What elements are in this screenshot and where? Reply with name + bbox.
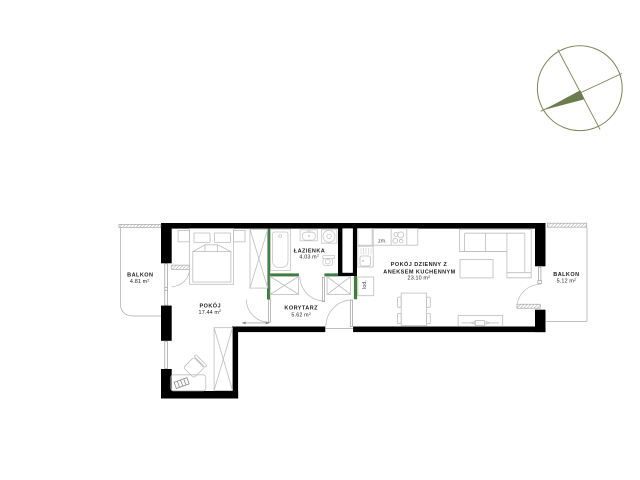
svg-text:4.03 m2: 4.03 m2 — [299, 254, 319, 261]
svg-text:4.81 m2: 4.81 m2 — [130, 279, 150, 286]
svg-text:ANEKSEM KUCHENNYM: ANEKSEM KUCHENNYM — [383, 269, 455, 275]
svg-text:17.44 m2: 17.44 m2 — [199, 309, 222, 316]
svg-text:5.12 m2: 5.12 m2 — [557, 278, 577, 285]
svg-text:5.62 m2: 5.62 m2 — [291, 312, 311, 319]
svg-text:POKÓJ: POKÓJ — [200, 302, 222, 310]
svg-text:zm.: zm. — [378, 239, 387, 245]
svg-text:POKÓJ DZIENNY Z: POKÓJ DZIENNY Z — [391, 260, 448, 268]
svg-text:BALKON: BALKON — [553, 272, 579, 278]
svg-text:23.10 m2: 23.10 m2 — [408, 275, 431, 282]
svg-text:BALKON: BALKON — [127, 272, 153, 278]
svg-text:KORYTARZ: KORYTARZ — [284, 305, 318, 311]
svg-text:lod.: lod. — [362, 280, 368, 289]
